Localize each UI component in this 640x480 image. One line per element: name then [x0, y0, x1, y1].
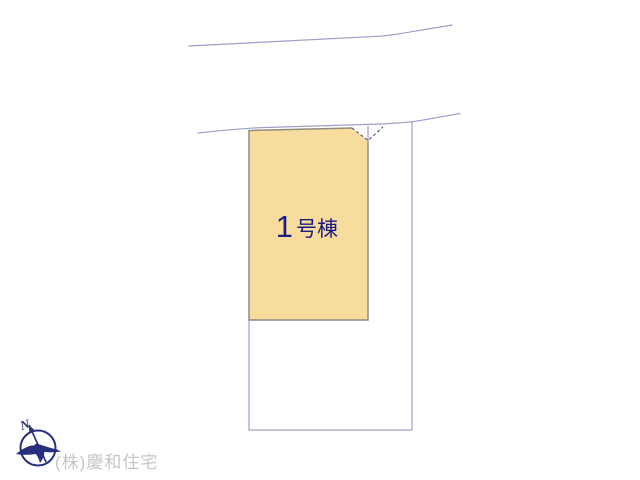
building-1-label-number: 1 — [276, 209, 293, 244]
site-plan-page: 1 号棟 N (株)慶和住宅 — [0, 0, 640, 480]
site-plan: 1 号棟 — [0, 0, 640, 480]
company-watermark: (株)慶和住宅 — [55, 448, 158, 473]
road-line-upper — [189, 25, 452, 46]
building-1-label-suffix: 号棟 — [296, 218, 338, 241]
